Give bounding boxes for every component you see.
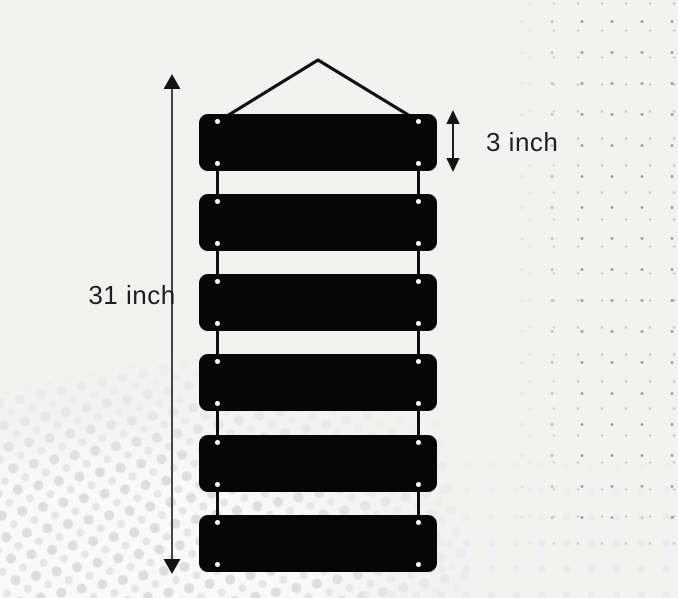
hole-bl xyxy=(215,241,220,246)
plank-board xyxy=(199,354,437,411)
string-right xyxy=(417,250,420,275)
hole-bl xyxy=(215,321,220,326)
plank-board xyxy=(199,114,437,171)
string-right xyxy=(417,491,420,516)
hole-tl xyxy=(215,440,220,445)
string-left xyxy=(216,410,219,435)
hole-tr xyxy=(416,440,421,445)
hole-br xyxy=(416,562,421,567)
string-left xyxy=(216,170,219,195)
plank-board xyxy=(199,435,437,492)
string-right xyxy=(417,330,420,355)
hole-tl xyxy=(215,520,220,525)
hole-br xyxy=(416,241,421,246)
hole-bl xyxy=(215,482,220,487)
total-height-label: 31 inch xyxy=(84,280,180,311)
product-diagram: 31 inch 3 inch xyxy=(0,0,678,598)
hole-tr xyxy=(416,119,421,124)
plank-3 xyxy=(199,274,437,331)
string-right xyxy=(417,410,420,435)
plank-board xyxy=(199,515,437,572)
plank-board xyxy=(199,194,437,251)
plank-5 xyxy=(199,435,437,492)
plank-6 xyxy=(199,515,437,572)
hole-br xyxy=(416,482,421,487)
hole-br xyxy=(416,321,421,326)
hole-tl xyxy=(215,199,220,204)
string-left xyxy=(216,330,219,355)
string-left xyxy=(216,491,219,516)
string-right xyxy=(417,170,420,195)
plank-board xyxy=(199,274,437,331)
plank-2 xyxy=(199,194,437,251)
hole-bl xyxy=(215,401,220,406)
plank-4 xyxy=(199,354,437,411)
hole-bl xyxy=(215,562,220,567)
string-left xyxy=(216,250,219,275)
hole-tl xyxy=(215,359,220,364)
plank-height-label: 3 inch xyxy=(486,127,558,158)
plank-1 xyxy=(199,114,437,171)
hole-tr xyxy=(416,279,421,284)
hole-tr xyxy=(416,199,421,204)
hole-br xyxy=(416,401,421,406)
hole-tl xyxy=(215,279,220,284)
hole-tl xyxy=(215,119,220,124)
hole-tr xyxy=(416,520,421,525)
hole-bl xyxy=(215,161,220,166)
hole-br xyxy=(416,161,421,166)
hole-tr xyxy=(416,359,421,364)
